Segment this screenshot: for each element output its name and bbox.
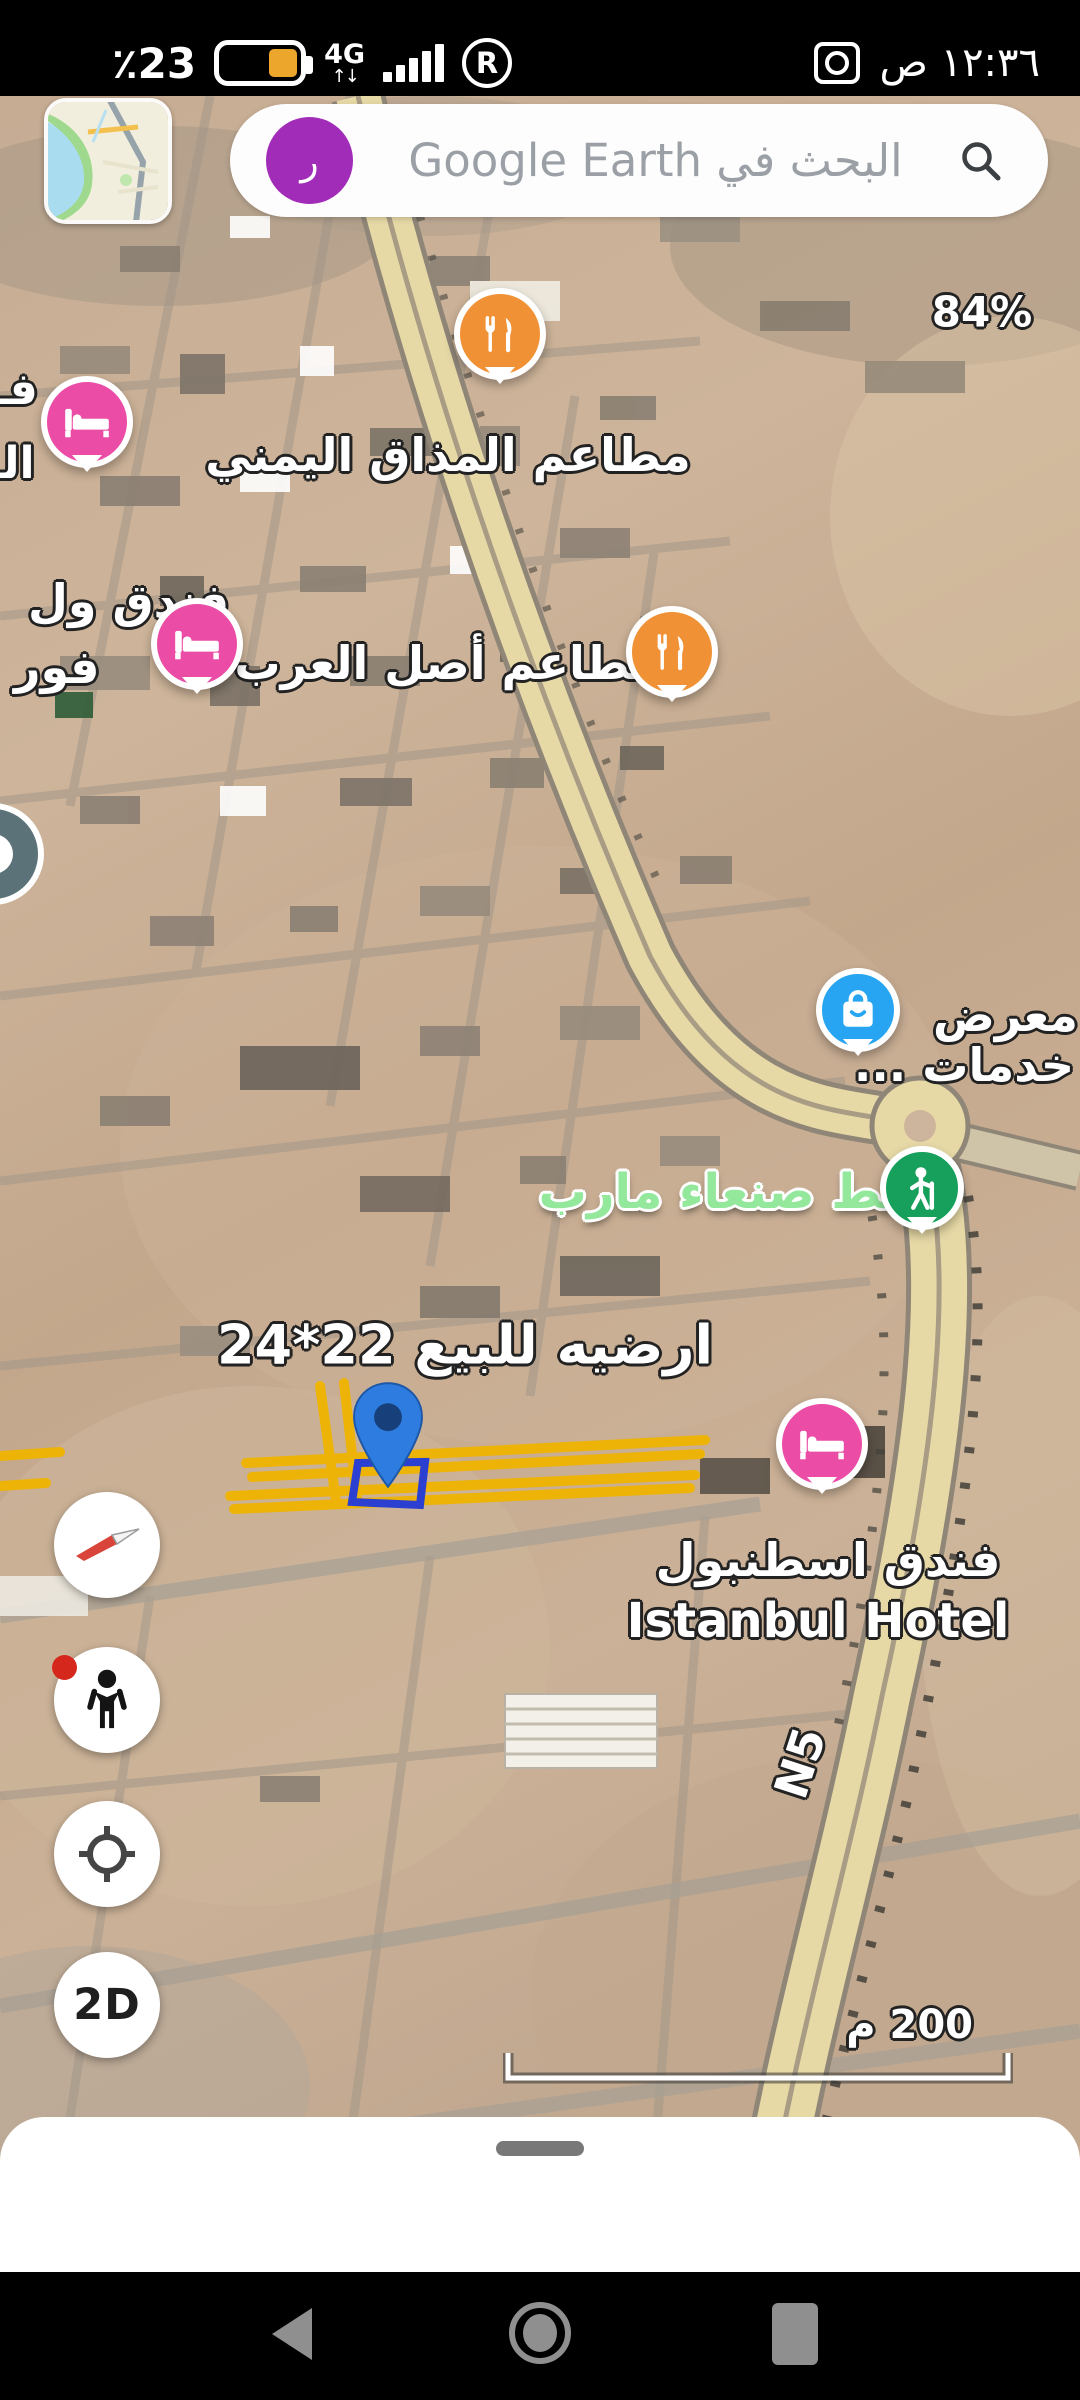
scale-label: 200 م — [846, 2002, 973, 2048]
view-mode-label: 2D — [73, 1980, 141, 2030]
label-land-for-sale: ارضيه للبيع 22*24 — [217, 1314, 713, 1377]
drag-handle[interactable] — [496, 2141, 584, 2156]
compass-needle-icon — [72, 1524, 142, 1566]
screen-recorder-icon — [814, 42, 860, 84]
restaurant-icon — [477, 311, 523, 357]
overview-map-art — [48, 102, 170, 222]
hotel-pin-left-mid[interactable] — [151, 598, 243, 690]
overview-map-thumbnail[interactable] — [44, 98, 172, 224]
search-input[interactable]: البحث في Google Earth — [353, 134, 958, 187]
shopping-bag-icon — [836, 989, 880, 1031]
location-marker[interactable] — [349, 1380, 427, 1494]
clock-text: ١٢:٣٦ ص — [880, 40, 1041, 86]
label-showroom-1: معرض — [933, 988, 1078, 1042]
scale-bar: 200 م — [503, 2048, 1013, 2088]
label-restaurant-arab: مطاعم أصل العرب — [234, 636, 659, 690]
hiker-icon — [900, 1165, 944, 1211]
hotel-pin-istanbul[interactable] — [776, 1398, 868, 1490]
label-hotel-partial-top: فـ — [0, 364, 38, 415]
roaming-icon: R — [462, 38, 512, 88]
label-sanaa-marib-line: خط صنعاء مارب — [539, 1164, 918, 1220]
pedestrian-pin[interactable] — [880, 1146, 964, 1230]
restaurant-pin-arab[interactable] — [626, 606, 718, 698]
status-bar: ٪23 4G ↑↓ R ١٢:٣٦ ص — [0, 0, 1080, 96]
hotel-bed-icon — [173, 627, 221, 661]
pegman-icon — [83, 1669, 131, 1731]
my-location-button[interactable] — [54, 1801, 160, 1907]
search-bar[interactable]: ر البحث في Google Earth — [230, 104, 1048, 217]
nav-recents-button[interactable] — [772, 2303, 818, 2365]
search-icon[interactable] — [958, 138, 1004, 184]
phone-screen: مطاعم المذاق اليمني مطاعم أصل العرب فـ ا… — [0, 0, 1080, 2400]
street-view-pegman-button[interactable] — [54, 1647, 160, 1753]
status-right-cluster: ١٢:٣٦ ص — [814, 40, 1041, 86]
battery-icon — [214, 40, 306, 86]
data-arrows-icon: ↑↓ — [331, 68, 357, 86]
nav-home-button[interactable] — [509, 2302, 571, 2364]
compass-button[interactable] — [54, 1492, 160, 1598]
network-type-indicator: 4G ↑↓ — [324, 41, 365, 86]
notification-dot — [52, 1655, 77, 1680]
hotel-pin-left-top[interactable] — [41, 376, 133, 468]
account-avatar[interactable]: ر — [266, 117, 353, 204]
hotel-bed-icon — [63, 405, 111, 439]
label-istanbul-hotel-ar: فندق اسطنبول — [656, 1533, 1001, 1587]
view-mode-2d-button[interactable]: 2D — [54, 1952, 160, 2058]
label-hotel-partial-mid: الـ — [0, 438, 35, 489]
crosshair-icon — [77, 1824, 137, 1884]
label-hotel-left-2: فور — [14, 640, 99, 694]
restaurant-pin-yemeni[interactable] — [454, 288, 546, 380]
map-marker-icon — [349, 1380, 427, 1490]
network-type-text: 4G — [324, 41, 365, 68]
bottom-sheet[interactable] — [0, 2117, 1080, 2277]
hotel-bed-icon — [798, 1427, 846, 1461]
battery-percent-text: ٪23 — [112, 39, 196, 88]
signal-bars-icon — [383, 44, 444, 82]
restaurant-icon — [649, 629, 695, 675]
label-restaurant-yemeni: مطاعم المذاق اليمني — [205, 428, 690, 482]
shopping-pin[interactable] — [816, 968, 900, 1052]
label-showroom-2: خدمات ... — [854, 1038, 1074, 1092]
label-istanbul-hotel-en: Istanbul Hotel — [627, 1593, 1010, 1649]
status-left-cluster: ٪23 4G ↑↓ R — [112, 38, 512, 88]
streaming-percent: 84% — [932, 288, 1033, 337]
nav-back-button[interactable] — [272, 2308, 312, 2360]
map-view[interactable]: مطاعم المذاق اليمني مطاعم أصل العرب فـ ا… — [0, 96, 1080, 2272]
